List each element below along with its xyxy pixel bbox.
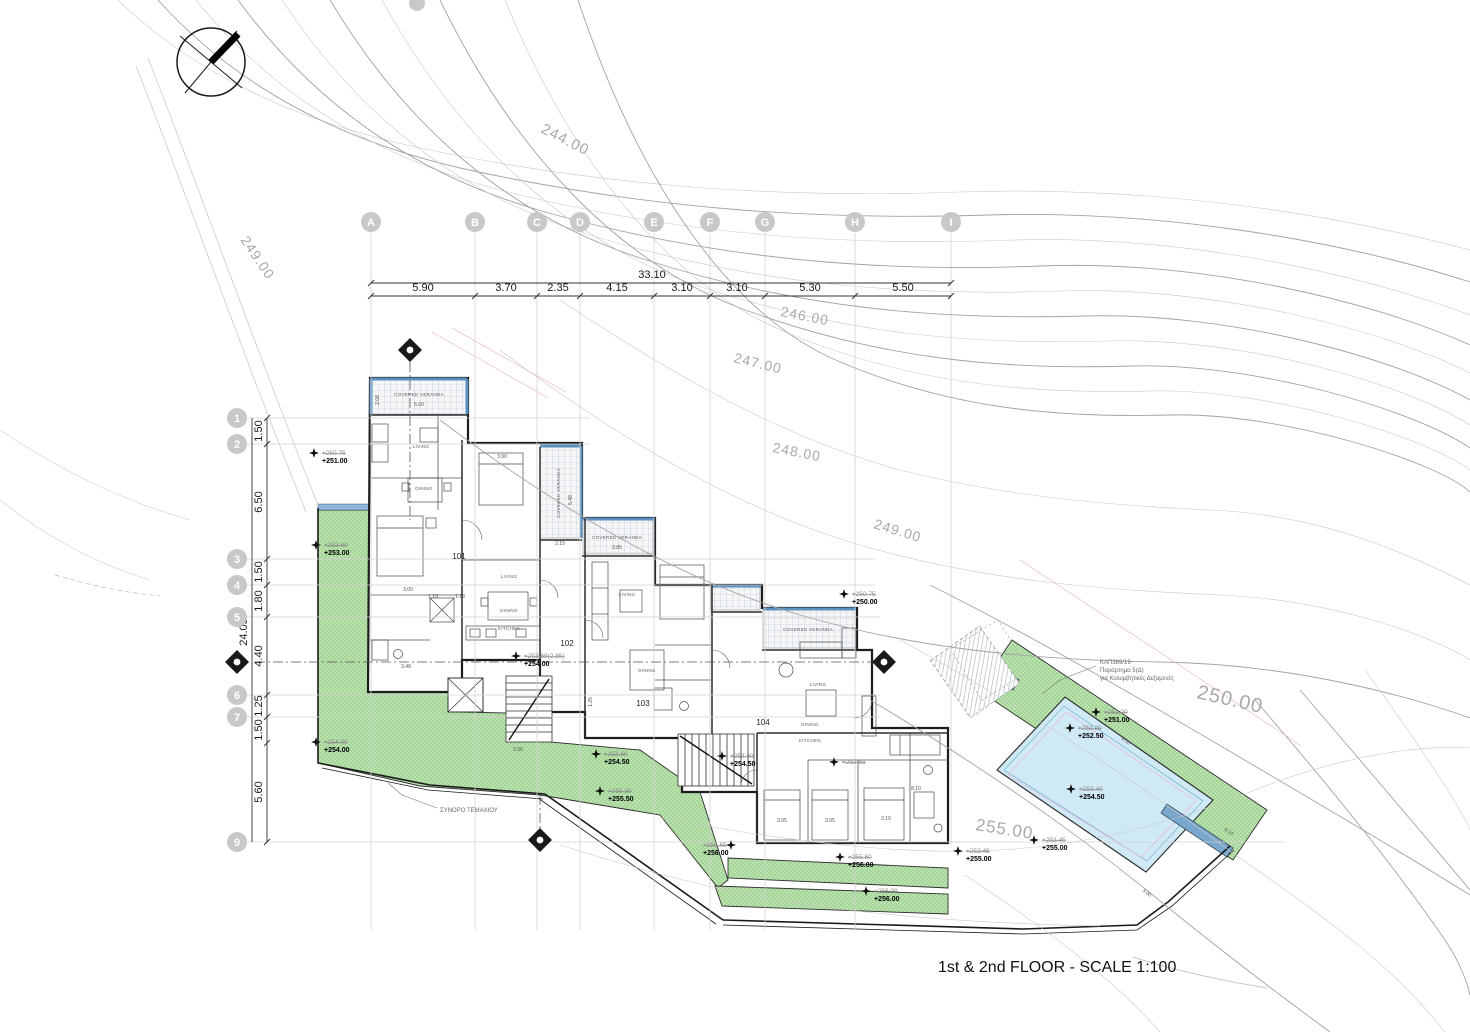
svg-text:+254.00: +254.00: [324, 739, 348, 746]
grid-column-h: H: [851, 217, 859, 229]
pool-note-3: για Κολυμβητικές Δεξαμενές: [1100, 675, 1174, 682]
pool-note-1: ΚΑΠ389/19: [1100, 660, 1131, 666]
grid-row-7: 7: [234, 712, 240, 724]
svg-text:+256.00: +256.00: [874, 896, 900, 903]
sheet-title: 1st & 2nd FLOOR - SCALE 1:100: [938, 959, 1176, 976]
contour-label-244: 244.00: [538, 120, 592, 159]
stair-2: [678, 734, 754, 786]
spot-1: +253.60+253.00: [311, 540, 350, 557]
dim-3-4: 1.50: [253, 561, 265, 582]
unit-104: 104: [756, 718, 770, 727]
grid-row-5: 5: [234, 612, 240, 624]
floor-plan-drawing: 244.00 249.00 246.00 247.00 248.00 249.0…: [0, 0, 1470, 1032]
svg-text:+254.50: +254.50: [604, 759, 630, 766]
dim-d-e: 4.15: [606, 282, 627, 294]
grid-column-i: I: [949, 217, 952, 229]
section-marker-left: [225, 650, 249, 674]
dim-a-b: 5.90: [412, 282, 433, 294]
veranda-dim-2w: 2.15: [555, 541, 565, 547]
grid-row-4: 4: [234, 580, 241, 592]
dim-d7: 1.25: [588, 697, 594, 707]
spot-8: +250.75+250.00: [839, 589, 878, 606]
svg-text:+250.75: +250.75: [322, 450, 346, 457]
svg-text:+255.50: +255.50: [608, 796, 634, 803]
contour-label-248: 248.00: [771, 439, 822, 464]
dim-2-3: 6.50: [253, 491, 265, 512]
grid-column-e: E: [650, 217, 657, 229]
veranda-label-5: COVERED VERANDA: [783, 627, 833, 632]
svg-text:+253.45: +253.45: [1042, 837, 1066, 844]
veranda-label-2: COVERED VERANDA: [556, 468, 561, 518]
column-bubbles: A B C D E F G H I: [361, 212, 961, 232]
section-marker-bottom: [528, 828, 552, 852]
grid-bubble-partial: [409, 0, 425, 11]
dim-d5b: 3.05: [825, 818, 835, 824]
svg-text:+256.00: +256.00: [703, 850, 729, 857]
spot-2: +254.00+254.00: [311, 737, 350, 754]
svg-text:+250.00: +250.00: [852, 599, 878, 606]
veranda-label-3: COVERED VERANDA: [592, 535, 642, 540]
overall-width-label: 33.10: [638, 269, 666, 281]
veranda-dim-1: 5.60: [414, 402, 424, 408]
dim-e-f: 3.10: [671, 282, 692, 294]
section-marker-top: [398, 338, 422, 362]
dim-bed1: 3.90: [497, 454, 507, 460]
svg-text:+255.00: +255.00: [1042, 845, 1068, 852]
svg-text:+253.60: +253.60: [730, 753, 754, 760]
dim-f-g: 3.10: [726, 282, 747, 294]
svg-text:+253.45: +253.45: [966, 848, 990, 855]
svg-text:+253.40: +253.40: [1079, 786, 1103, 793]
contour-label-247: 247.00: [732, 349, 783, 376]
grid-row-6: 6: [234, 690, 240, 702]
grid-row-3: 3: [234, 554, 240, 566]
svg-text:+254.50: +254.50: [1079, 794, 1105, 801]
dim-g-h: 5.30: [799, 282, 820, 294]
grid-column-a: A: [367, 217, 375, 229]
dim-h-i: 5.50: [892, 282, 913, 294]
dim-b-c: 3.70: [495, 282, 516, 294]
green-strip-2: [715, 886, 948, 914]
svg-text:+256.00: +256.00: [848, 862, 874, 869]
svg-text:+254.00: +254.00: [524, 661, 550, 668]
grid-row-9: 9: [234, 837, 240, 849]
room-dining-1: DINING: [415, 486, 433, 491]
dim-810-room: 8.10: [911, 786, 921, 792]
grid-column-c: C: [533, 217, 541, 229]
contour-label-250: 250.00: [1195, 681, 1265, 718]
floor-plan-sheet: 244.00 249.00 246.00 247.00 248.00 249.0…: [0, 0, 1470, 1032]
dim-4-5: 1.80: [253, 590, 265, 611]
dim-pool-end: 3.00: [1141, 888, 1153, 899]
dim-stair: 2.50: [513, 747, 523, 753]
dim-d3: 3.00: [403, 587, 413, 593]
svg-text:+253.60: +253.60: [324, 542, 348, 549]
svg-text:+250.75: +250.75: [852, 591, 876, 598]
room-kitchen-2: KITCHEN: [498, 626, 520, 631]
room-dining-2: DINING: [500, 608, 518, 613]
stair-1: [506, 676, 552, 742]
svg-text:+251.00: +251.00: [1104, 717, 1130, 724]
svg-text:+255.60: +255.60: [848, 854, 872, 861]
veranda-label-1: COVERED VERANDA: [394, 392, 444, 397]
svg-text:+253.00: +253.00: [324, 550, 350, 557]
veranda-dim-3: 3.85: [612, 545, 622, 551]
svg-text:+253.65(2.85): +253.65(2.85): [524, 653, 565, 660]
svg-text:+252.50: +252.50: [1078, 733, 1104, 740]
unit-101: 101: [452, 552, 466, 561]
svg-text:+255.00: +255.00: [966, 856, 992, 863]
room-living-3: LIVING: [619, 592, 636, 597]
grid-column-g: G: [761, 217, 770, 229]
room-living-4: LIVING: [810, 682, 827, 687]
dim-d5a: 3.05: [777, 818, 787, 824]
veranda-dim-1d: 2.08: [375, 395, 381, 405]
grid-column-d: D: [576, 217, 584, 229]
dim-5-6: 4.40: [253, 645, 265, 666]
unit-103: 103: [636, 699, 650, 708]
dim-1-2: 1.50: [253, 420, 265, 441]
svg-text:+253.65: +253.65: [842, 759, 866, 766]
spot-9: +255.65+256.00: [703, 840, 736, 857]
svg-text:+254.50: +254.50: [730, 761, 756, 768]
dim-d1: 1.19: [428, 594, 438, 600]
dim-d2: 1.28: [455, 594, 465, 600]
spot-13: +253.45+255.00: [1029, 835, 1068, 852]
room-living-1: LIVING: [413, 444, 430, 449]
north-arrow-icon: [177, 28, 245, 96]
room-kitchen-4: KITCHEN: [799, 738, 821, 743]
unit-102: 102: [560, 639, 574, 648]
grid-row-1: 1: [234, 413, 240, 425]
room-dining-3: DINING: [638, 668, 656, 673]
dim-d4: 3.48: [401, 664, 411, 670]
room-dining-4: DINING: [801, 722, 819, 727]
dim-c-d: 2.35: [547, 282, 568, 294]
dim-d6: 3.10: [881, 816, 891, 822]
dim-6-7: 1.25: [253, 695, 265, 716]
svg-text:+253.60: +253.60: [604, 751, 628, 758]
spot-0: +250.75+251.00: [309, 448, 348, 465]
svg-text:+255.65: +255.65: [703, 842, 727, 849]
contour-label-249: 249.00: [872, 516, 923, 546]
contour-label-249-west: 249.00: [238, 233, 279, 282]
green-top-wall-strip: [318, 504, 373, 510]
svg-text:+252.20: +252.20: [1078, 725, 1102, 732]
svg-text:+255.30: +255.30: [608, 788, 632, 795]
svg-text:+254.00: +254.00: [324, 747, 350, 754]
section-marker-right: [872, 650, 896, 674]
grid-row-2: 2: [234, 439, 240, 451]
pool-note-2: Παράρτημα 5(Δ): [1100, 667, 1144, 674]
contour-label-255: 255.00: [974, 815, 1034, 843]
svg-text:+251.00: +251.00: [322, 458, 348, 465]
dim-8-9: 5.60: [253, 781, 265, 802]
grid-column-f: F: [707, 217, 714, 229]
grid-column-b: B: [471, 217, 479, 229]
room-living-2: LIVING: [501, 574, 518, 579]
svg-text:+251.00: +251.00: [1104, 709, 1128, 716]
svg-text:+256.00: +256.00: [874, 888, 898, 895]
veranda-dim-2: 5.48: [568, 495, 574, 505]
green-strip-1: [728, 858, 948, 888]
spot-12: +253.45+255.00: [953, 846, 992, 863]
boundary-note: ΣΥΝΟΡΟ ΤΕΜΑΧΙΟΥ: [440, 808, 498, 814]
dim-7-8: 1.50: [253, 719, 265, 740]
